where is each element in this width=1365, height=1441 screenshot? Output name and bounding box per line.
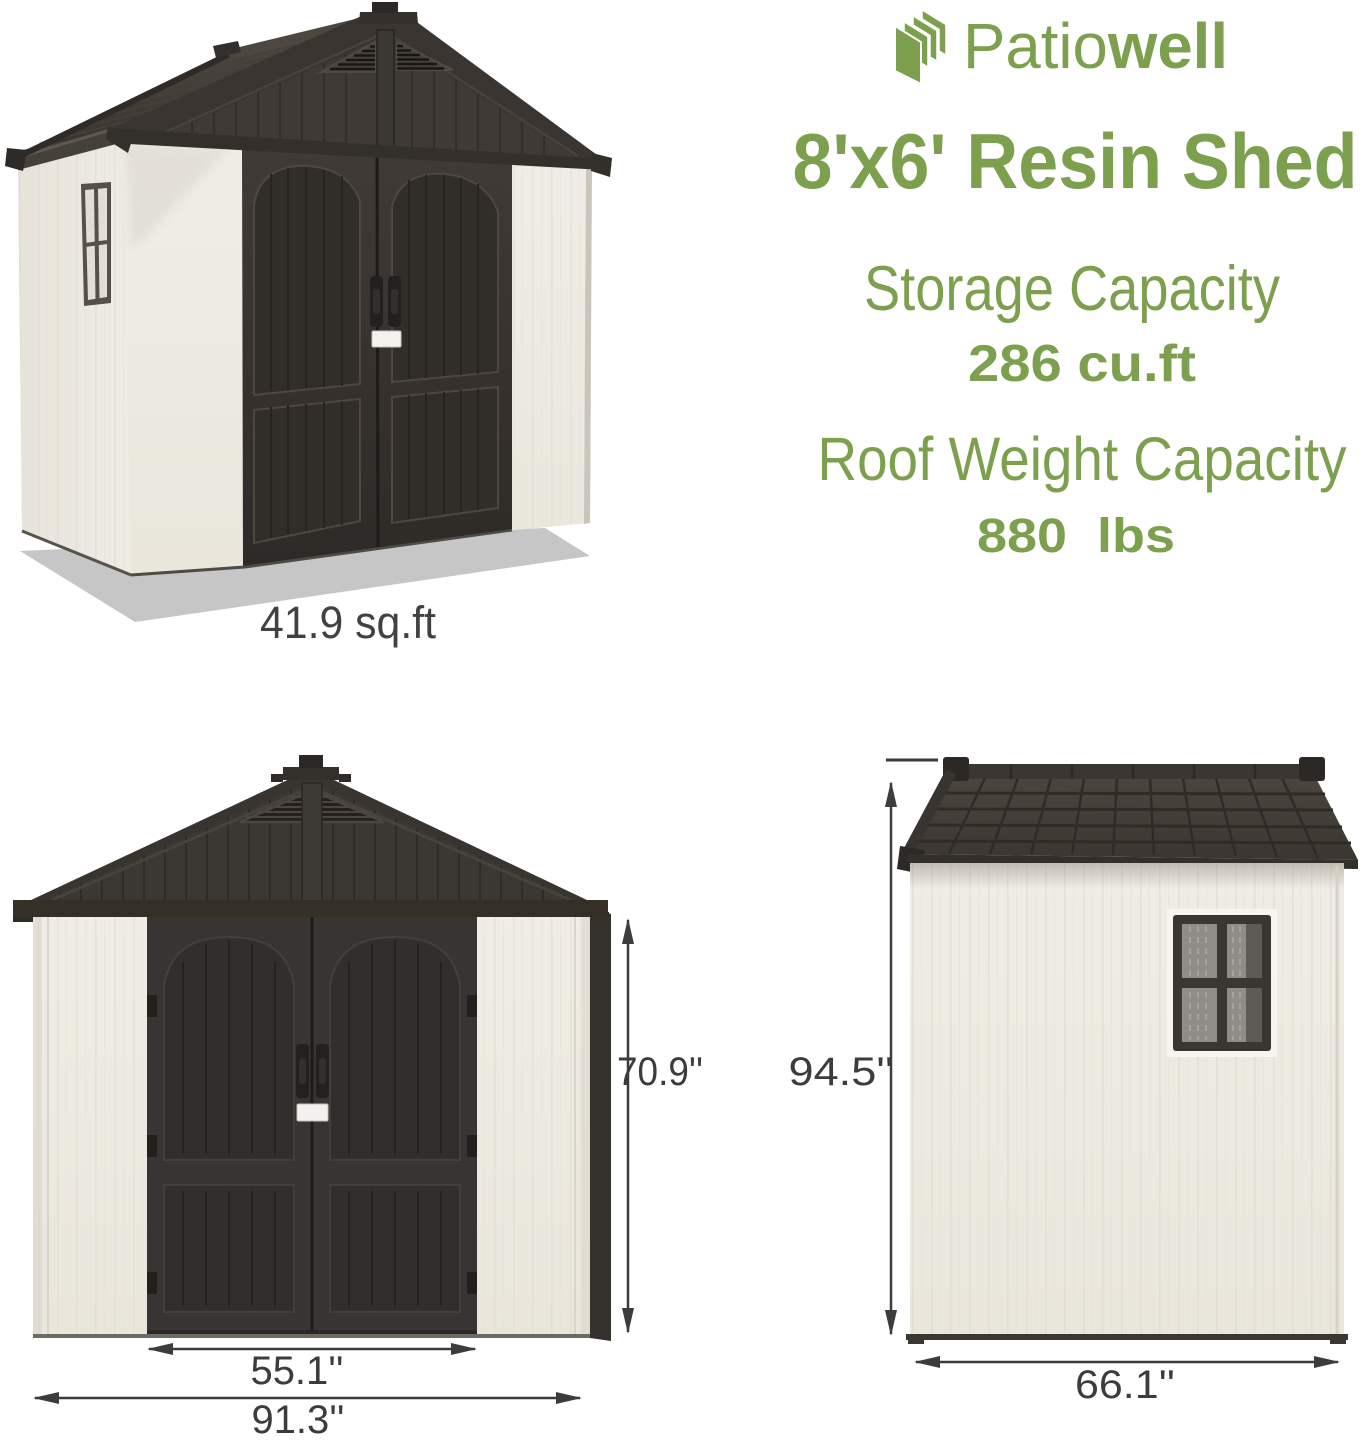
svg-text:55.1'': 55.1'' xyxy=(251,1349,344,1393)
svg-text:Roof Weight Capacity: Roof Weight Capacity xyxy=(818,425,1347,493)
svg-text:94.5'': 94.5'' xyxy=(789,1050,894,1094)
svg-text:91.3'': 91.3'' xyxy=(252,1398,345,1441)
svg-text:41.9 sq.ft: 41.9 sq.ft xyxy=(260,597,436,648)
svg-text:Storage Capacity: Storage Capacity xyxy=(864,254,1280,324)
svg-text:70.9'': 70.9'' xyxy=(617,1050,703,1094)
svg-text:66.1'': 66.1'' xyxy=(1075,1363,1175,1407)
svg-text:286 cu.ft: 286 cu.ft xyxy=(968,335,1196,393)
svg-text:880 lbs: 880 lbs xyxy=(977,510,1175,563)
svg-text:8'x6' Resin Shed: 8'x6' Resin Shed xyxy=(793,117,1358,205)
svg-text:Patiowell: Patiowell xyxy=(963,10,1228,82)
